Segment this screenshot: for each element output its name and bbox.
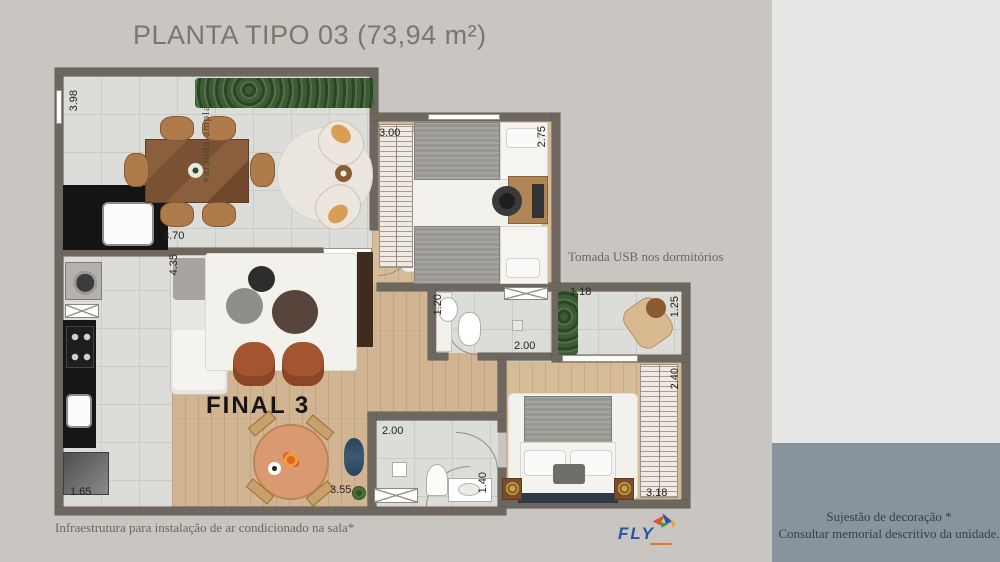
dining-chair (250, 153, 275, 187)
wall-banho1-bottom-b (478, 353, 560, 360)
banho2-shower-head (392, 462, 407, 477)
dim-varanda-depth: 3.98 (68, 90, 80, 111)
dining-chair (160, 116, 194, 141)
banho2-toilet (426, 464, 448, 496)
bed2-pillow (506, 258, 540, 278)
bed-master-blanket (524, 396, 612, 444)
vertical-garden (558, 291, 578, 355)
duct-box-kitchen (65, 304, 99, 318)
nightstand-lamp (506, 482, 519, 495)
dim-banho1-width: 1.20 (432, 294, 444, 315)
pouf-black (248, 266, 275, 292)
bed-master-headboard (518, 493, 618, 503)
fly-logo-bird-icon (667, 519, 676, 527)
office-chair (492, 186, 522, 216)
wall-dorm2-left-a (498, 360, 506, 432)
dim-terraco-width: 1.18 (570, 286, 591, 298)
pouf-brown (272, 290, 318, 334)
kitchen-sink-2 (66, 394, 92, 428)
right-light-panel (772, 0, 1000, 443)
wall-bottom (55, 507, 506, 515)
window-dorm1 (428, 114, 500, 120)
wall-banho2-top (368, 412, 506, 420)
decor-disclaimer-line1: Sujestão de decoração * (778, 508, 1000, 525)
bed2-blanket (414, 226, 500, 284)
dim-dorm2-depth: 2.40 (669, 368, 681, 389)
bed1-blanket (414, 122, 500, 180)
pouf-gray (226, 288, 263, 324)
nightstand-lamp (618, 482, 631, 495)
dim-banho1-length: 2.00 (514, 340, 535, 352)
dim-dorm2-width: 3.18 (646, 487, 667, 499)
wardrobe-dorm1 (379, 124, 413, 268)
dim-banho2-width: 2.00 (382, 425, 403, 437)
duct-box-banho2 (374, 488, 418, 503)
decor-disclaimer: Sujestão de decoração * Consultar memori… (778, 508, 1000, 542)
table-flowers (281, 450, 301, 470)
plant-small (352, 486, 366, 500)
planter-varanda (195, 78, 375, 108)
table-cup (268, 462, 281, 475)
duct-box-banho1 (504, 287, 548, 300)
dining-chair (160, 202, 194, 227)
wardrobe-rail (396, 125, 397, 267)
dim-varanda-width: 3.70 (163, 230, 184, 242)
dim-terraco-depth: 1.25 (669, 296, 681, 317)
washing-machine (65, 262, 102, 300)
dim-dorm1-width: 3.00 (379, 127, 400, 139)
wall-top (55, 68, 378, 76)
note-ac: Infraestrutura para instalação de ar con… (55, 520, 354, 536)
wall-banho1-bottom-a (428, 353, 448, 360)
tv-panel (357, 252, 373, 347)
wall-right (682, 283, 690, 508)
bed-master-throw (553, 464, 585, 484)
unit-label: FINAL 3 (206, 392, 310, 420)
wall-left (55, 68, 63, 515)
dim-dorm1-depth: 2.75 (536, 126, 548, 147)
side-table (335, 165, 352, 182)
sideboard-navy (344, 438, 364, 476)
fly-logo: FLY (618, 524, 655, 544)
shower-drain (512, 320, 523, 331)
right-slate-panel (772, 443, 1000, 562)
wardrobe-rail (659, 365, 660, 497)
dim-sala-depth: 4.35 (168, 254, 180, 275)
dining-chair (124, 153, 149, 187)
dim-sala-width: 3.55 (330, 484, 351, 496)
armchair-leather (233, 342, 275, 386)
banho1-toilet (458, 312, 481, 346)
label-varanda: varanda ampla (200, 105, 212, 182)
page-title: PLANTA TIPO 03 (73,94 m²) (133, 20, 487, 51)
sliding-door-dorm2 (562, 355, 638, 362)
note-usb: Tomada USB nos dormitórios (568, 249, 723, 265)
bed1-pillow (506, 128, 540, 148)
dim-cozinha-width: 1.65 (70, 486, 91, 498)
armchair-leather (282, 342, 324, 386)
wall-dorm1-right (552, 113, 560, 291)
dim-banho2-depth: 1.40 (477, 472, 489, 493)
desk-monitor (532, 184, 544, 218)
fly-logo-tagline-rule (650, 543, 672, 545)
cooktop (66, 326, 94, 368)
terrace-chair-cushion (646, 298, 666, 318)
decor-disclaimer-line2: Consultar memorial descritivo da unidade… (778, 525, 1000, 542)
dining-chair (202, 202, 236, 227)
kitchen-sink (102, 202, 154, 246)
window-varanda-left (56, 90, 62, 124)
slide: Sujestão de decoração * Consultar memori… (0, 0, 1000, 562)
